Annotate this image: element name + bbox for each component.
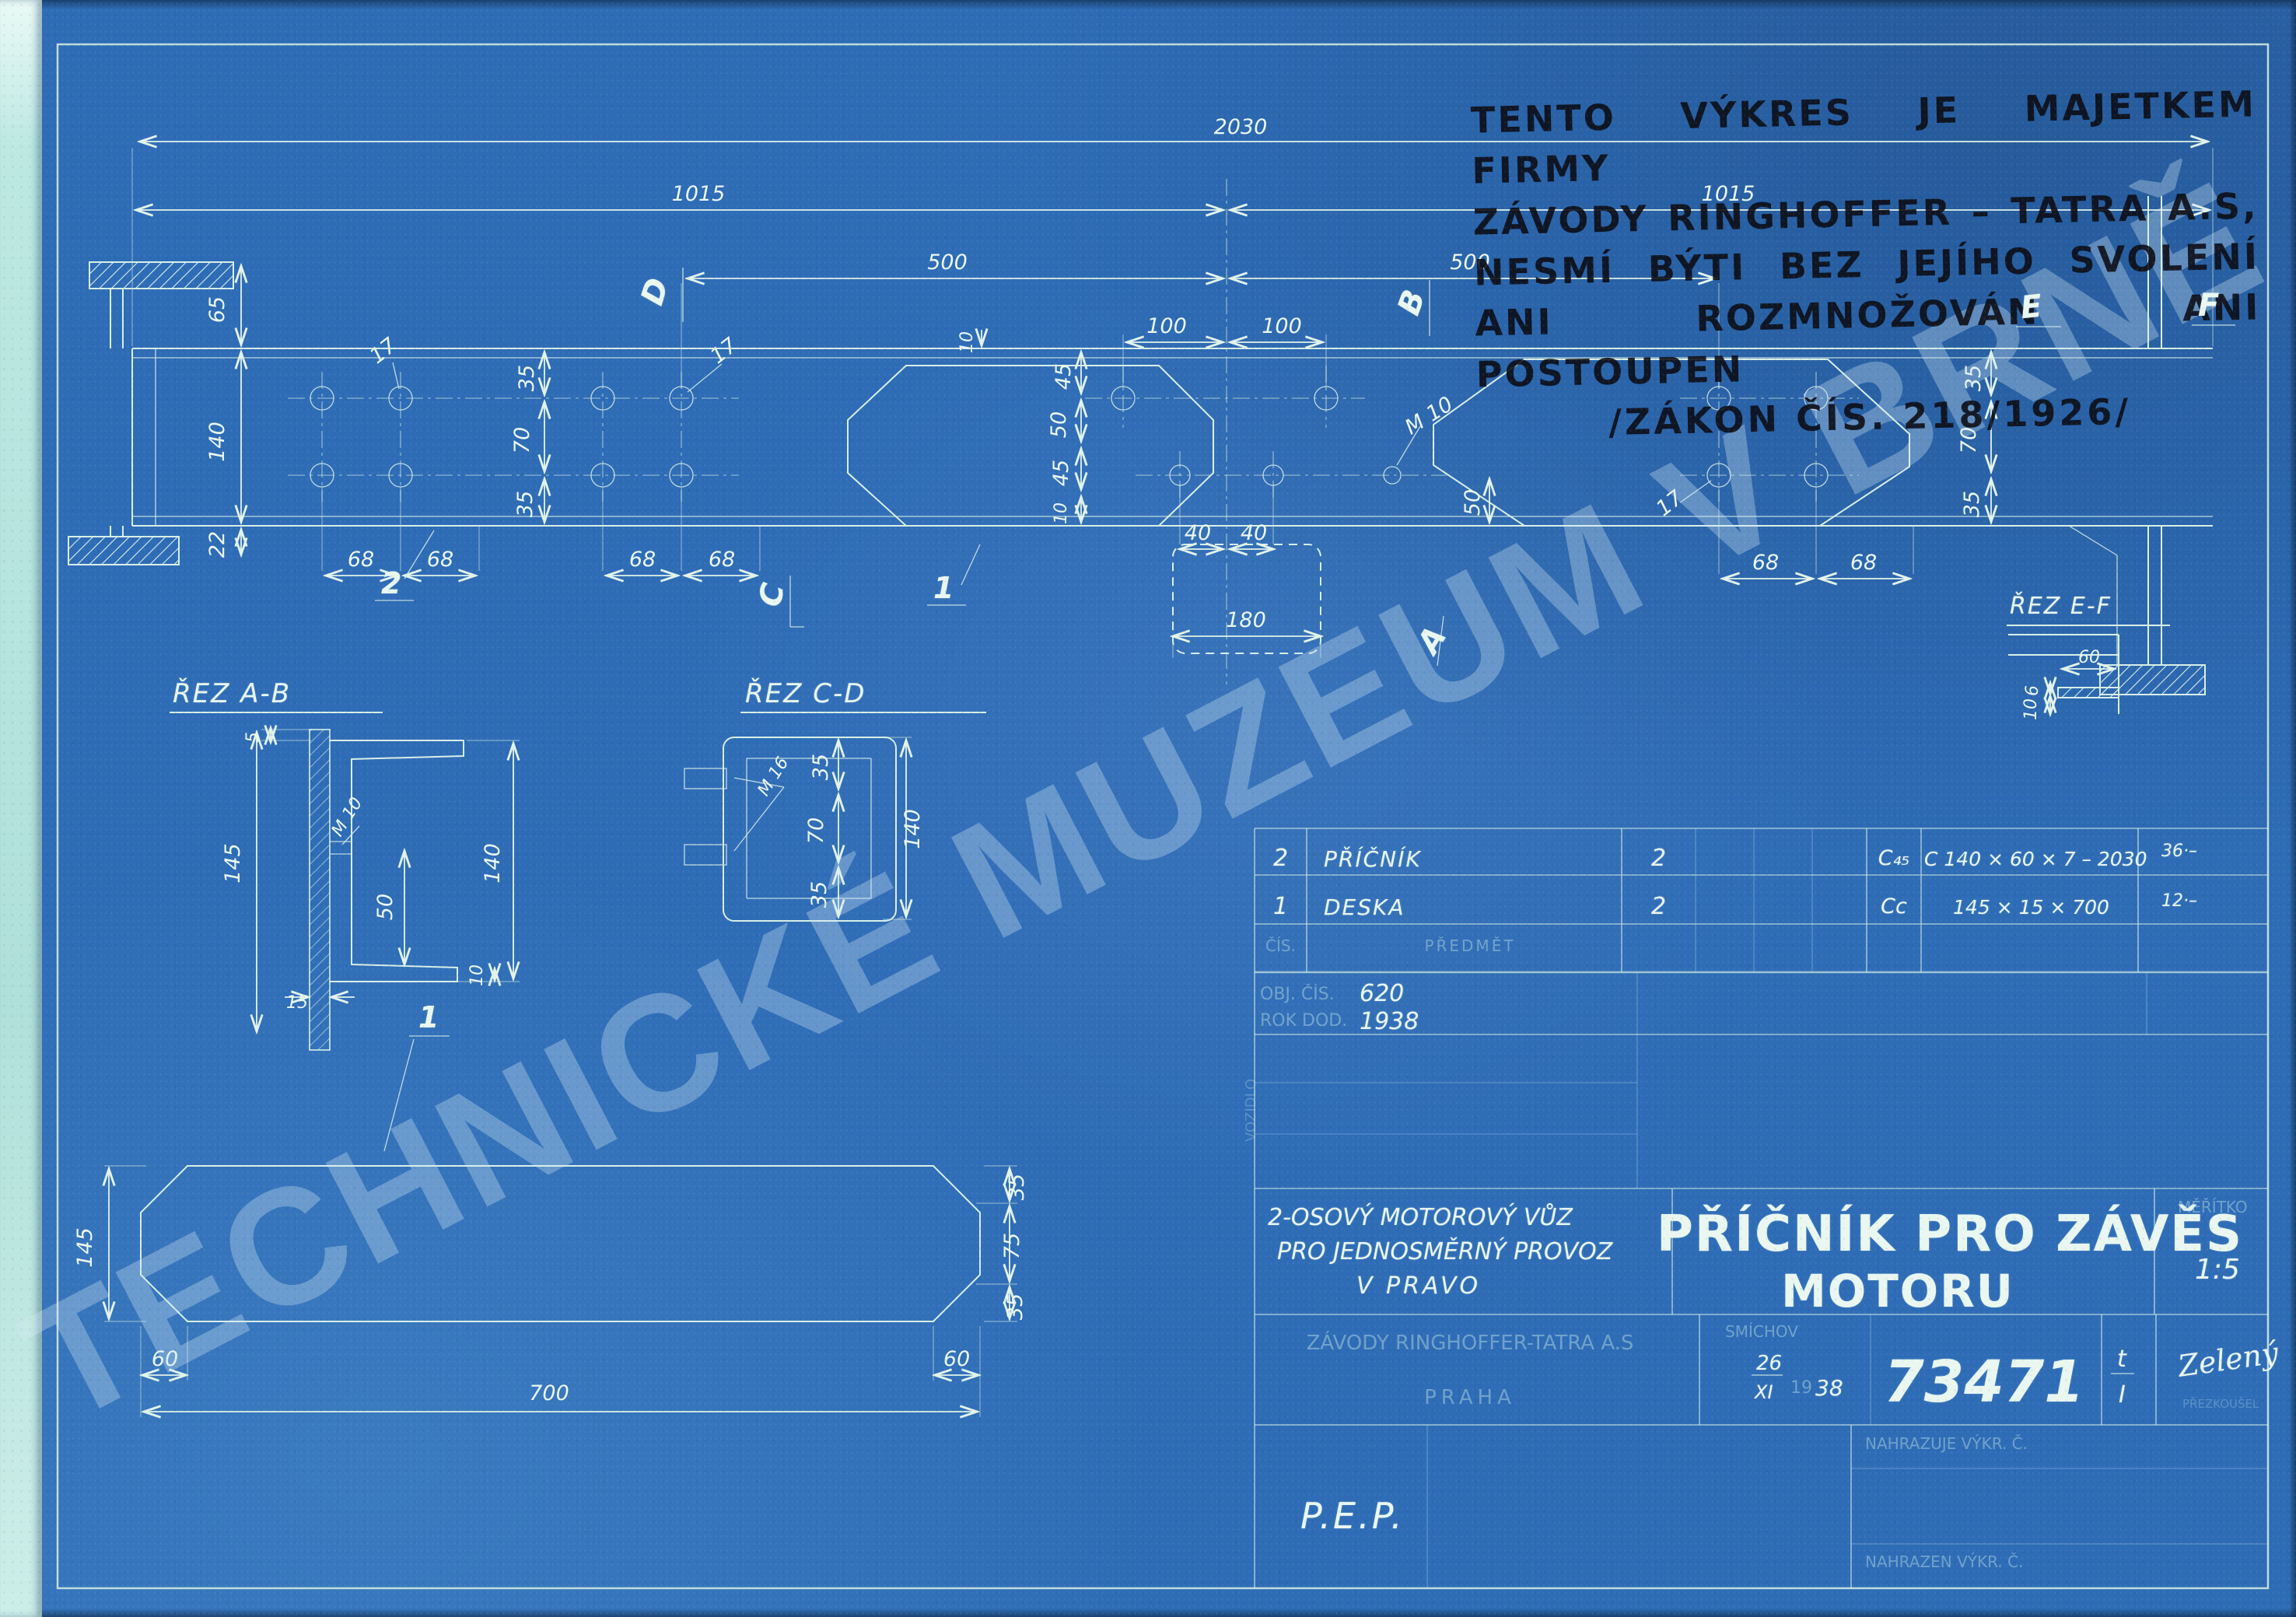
date-year-stamp: 19 — [1790, 1378, 1812, 1398]
vehicle-description-line3: V PRAVO — [1356, 1272, 1481, 1300]
scale-value: 1:5 — [2195, 1254, 2240, 1286]
table-cell-weight: 12·– — [2133, 891, 2226, 911]
delivery-year-label: ROK DOD. — [1260, 1011, 1347, 1031]
item-label-plate: 1 — [933, 571, 954, 605]
dimension-label: 10 — [467, 964, 487, 986]
dimension-label: 68 — [1850, 551, 1877, 575]
m16-bolt-bottom — [684, 845, 726, 865]
dimension-label: 10 — [2021, 698, 2041, 720]
dimension-label: 700 — [529, 1381, 569, 1405]
vehicle-description-line1: 2-OSOVÝ MOTOROVÝ VŮZ — [1268, 1204, 1573, 1231]
dimension-label: 35 — [515, 365, 539, 391]
company-city: PRAHA — [1268, 1386, 1672, 1409]
item-label-channel: 2 — [381, 566, 401, 600]
dimension-label: 15 — [286, 993, 308, 1013]
table-cell-size: 145 × 15 × 700 — [1924, 896, 2138, 919]
deska-plate-edge — [310, 730, 330, 1050]
dimension-label: 45 — [1049, 460, 1073, 486]
dimension-label: 68 — [709, 548, 735, 572]
table-header-predmet: PŘEDMĚT — [1314, 936, 1626, 955]
dimension-label: 140 — [205, 422, 229, 462]
checked-label: PŘEZKOUŠEL — [2182, 1397, 2259, 1411]
dimension-label: 65 — [205, 296, 229, 323]
table-cell-size: C 140 × 60 × 7 – 2030 — [1924, 848, 2138, 870]
table-cell-pos: 1 — [1255, 893, 1307, 920]
section-label-cd: ŘEZ C-D — [745, 678, 866, 709]
dimension-label: 10 — [957, 331, 977, 353]
dimension-label: 35 — [809, 754, 833, 780]
dimension-label: 17 — [706, 334, 742, 369]
table-cell-material: C₄₅ — [1865, 846, 1923, 870]
cut-marker-e: E — [2019, 289, 2044, 327]
dimension-label: 145 — [221, 843, 245, 884]
drawing-title-line2: MOTORU — [1657, 1265, 2139, 1318]
date-month: XI — [1755, 1381, 1773, 1403]
octagonal-cutout-left — [848, 366, 1213, 526]
drawing-title-line1: PŘÍČNÍK PRO ZÁVĚS — [1657, 1206, 2139, 1263]
dimension-label: 45 — [1052, 363, 1076, 390]
dimension-label: 40 — [1241, 521, 1267, 545]
left-bracket-top-plate — [89, 262, 233, 289]
dimension-label: 22 — [205, 531, 229, 558]
order-number-value: 620 — [1360, 980, 1404, 1007]
dimension-label: 500 — [927, 250, 968, 275]
dimension-label: 2030 — [1214, 115, 1268, 139]
dimension-label: 10 — [1052, 502, 1071, 524]
cut-marker-f: F — [2198, 288, 2219, 324]
dimension-label: 70 — [510, 427, 534, 453]
dimension-label: 17 — [366, 334, 401, 369]
sheet-fraction-top: t — [2117, 1346, 2126, 1373]
vehicle-cell-label: VOZIDLO — [1243, 1079, 1259, 1142]
dimension-label: 35 — [1960, 491, 1984, 517]
left-bracket-foot-plate — [68, 537, 179, 565]
dimension-label: 50 — [373, 894, 397, 920]
dimension-label: 140 — [481, 843, 505, 884]
dimension-label: 5 — [243, 732, 263, 743]
place-label: SMÍCHOV — [1725, 1322, 1798, 1341]
dimension-label: M 10 — [1401, 392, 1458, 439]
dimension-label: 70 — [804, 817, 828, 844]
dimension-label: M 10 — [328, 794, 367, 840]
sheet-fraction-bottom: I — [2119, 1381, 2126, 1409]
item-label-plate: 1 — [418, 1000, 439, 1034]
table-cell-name: PŘÍČNÍK — [1324, 846, 1422, 872]
date-year-hand: 38 — [1815, 1375, 1843, 1401]
vehicle-description-line2: PRO JEDNOSMĚRNÝ PROVOZ — [1277, 1238, 1612, 1265]
dimension-label: 1015 — [672, 182, 726, 206]
delivery-year-value: 1938 — [1360, 1008, 1419, 1035]
dimension-label: 68 — [348, 548, 374, 572]
stamp-line: TENTO VÝKRES JE MAJETKEM FIRMY — [1470, 79, 2258, 197]
order-number-label: OBJ. ČÍS. — [1260, 985, 1335, 1004]
replaced-by-drawing-label: NAHRAZEN VÝKR. Č. — [1865, 1552, 2023, 1571]
dimension-label: 180 — [1226, 608, 1266, 632]
dimension-label: 60 — [943, 1347, 970, 1371]
dimension-label: 50 — [1461, 489, 1485, 516]
section-label-ef: ŘEZ E-F — [2010, 593, 2112, 620]
date-day: 26 — [1756, 1352, 1782, 1375]
replaces-drawing-label: NAHRAZUJE VÝKR. Č. — [1865, 1434, 2028, 1453]
dimension-label: 35 — [513, 491, 537, 517]
section-label-ab: ŘEZ A-B — [173, 678, 291, 709]
blueprint-sheet: 2030101510155005001001006514022357035171… — [0, 0, 2296, 1617]
drawing-number: 73471 — [1871, 1349, 2097, 1416]
dimension-label: 60 — [2078, 648, 2100, 667]
table-cell-material: Cc — [1865, 894, 1923, 919]
dimension-label: 68 — [629, 548, 656, 572]
stamp-line: ANI ROZMNOŽOVÁN ANI POSTOUPEN — [1475, 282, 2263, 401]
table-cell-weight: 36·– — [2133, 842, 2226, 861]
table-cell-name: DESKA — [1324, 894, 1405, 920]
ownership-stamp: TENTO VÝKRES JE MAJETKEM FIRMY ZÁVODY RI… — [1470, 79, 2263, 450]
dimension-label: 50 — [1047, 411, 1071, 438]
dimension-label: 68 — [427, 548, 453, 572]
m16-bolt-top — [684, 768, 726, 789]
scale-label: MĚŘÍTKO — [2178, 1198, 2248, 1216]
weld-plate-section — [2058, 688, 2119, 698]
table-cell-pos: 2 — [1255, 845, 1307, 872]
table-header-cis: ČÍS. — [1255, 936, 1307, 955]
dimension-label: 35 — [1003, 1293, 1027, 1320]
table-cell-qty: 2 — [1622, 845, 1696, 872]
dimension-label: 40 — [1185, 521, 1211, 545]
dimension-label: M 16 — [754, 754, 793, 800]
pep-note: P.E.P. — [1300, 1495, 1405, 1537]
company-name: ZÁVODY RINGHOFFER-TATRA A.S — [1268, 1332, 1672, 1355]
dimension-label: 6 — [2023, 685, 2042, 696]
dimension-label: 35 — [1005, 1174, 1029, 1200]
dimension-label: 75 — [1000, 1233, 1024, 1259]
dimension-label: 100 — [1262, 314, 1302, 338]
dimension-label: 100 — [1146, 314, 1187, 338]
table-cell-qty: 2 — [1622, 893, 1696, 920]
section-ab — [170, 712, 464, 1050]
